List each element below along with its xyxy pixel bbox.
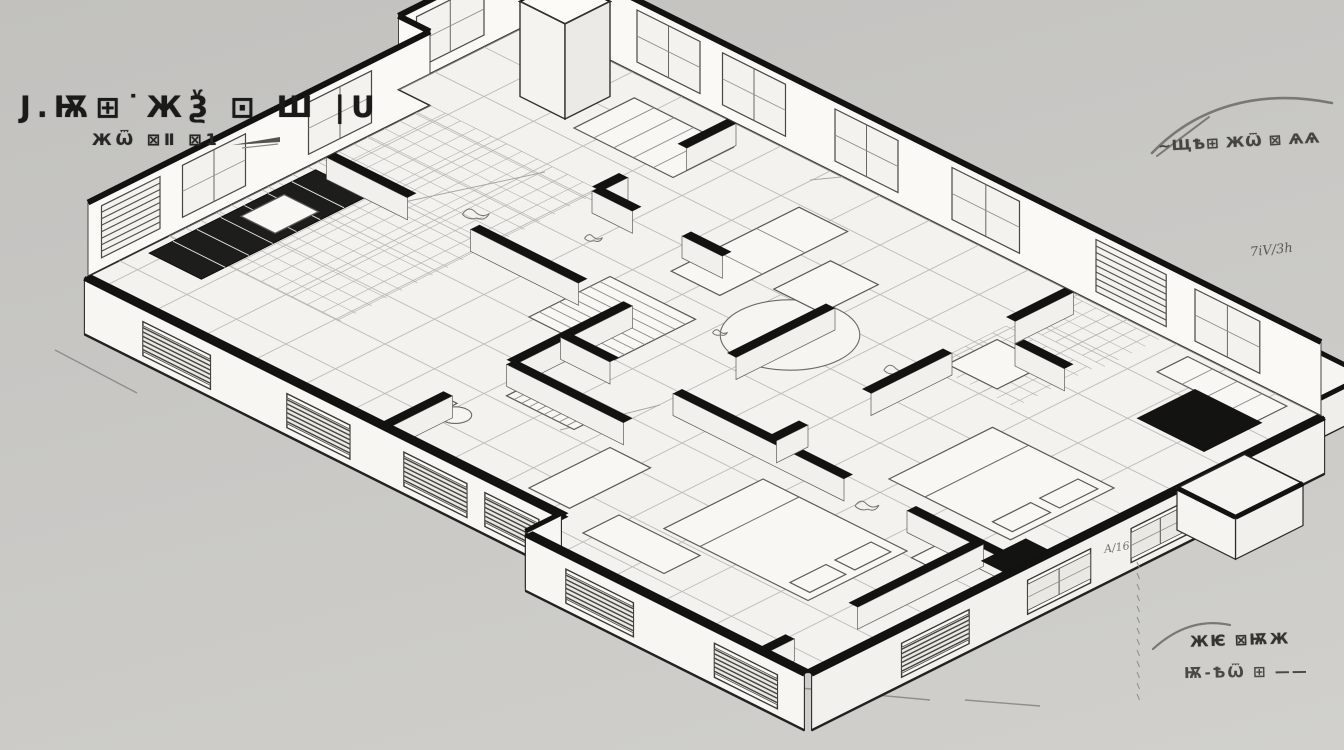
title-pseudotext-line1: J.Ѭ⊞˙ЖѮ ⊡ Ш |U: [20, 90, 381, 124]
annotation-bottom-right-1: ЖѤ ⊠ѬЖ: [1190, 629, 1291, 650]
title-pseudotext-line2: ЖѾ ⊠Ⅱ ⊠1: [92, 130, 221, 149]
blueprint-canvas: J.Ѭ⊞˙ЖѮ ⊡ Ш |U ЖѾ ⊠Ⅱ ⊠1 ∼ЩѢ⊞ ЖѾ ⊠ ѦѦ 7iV…: [0, 0, 1344, 750]
annotation-bottom-right-2: Ѭ-ѢѾ ⊞ ——: [1184, 662, 1309, 682]
